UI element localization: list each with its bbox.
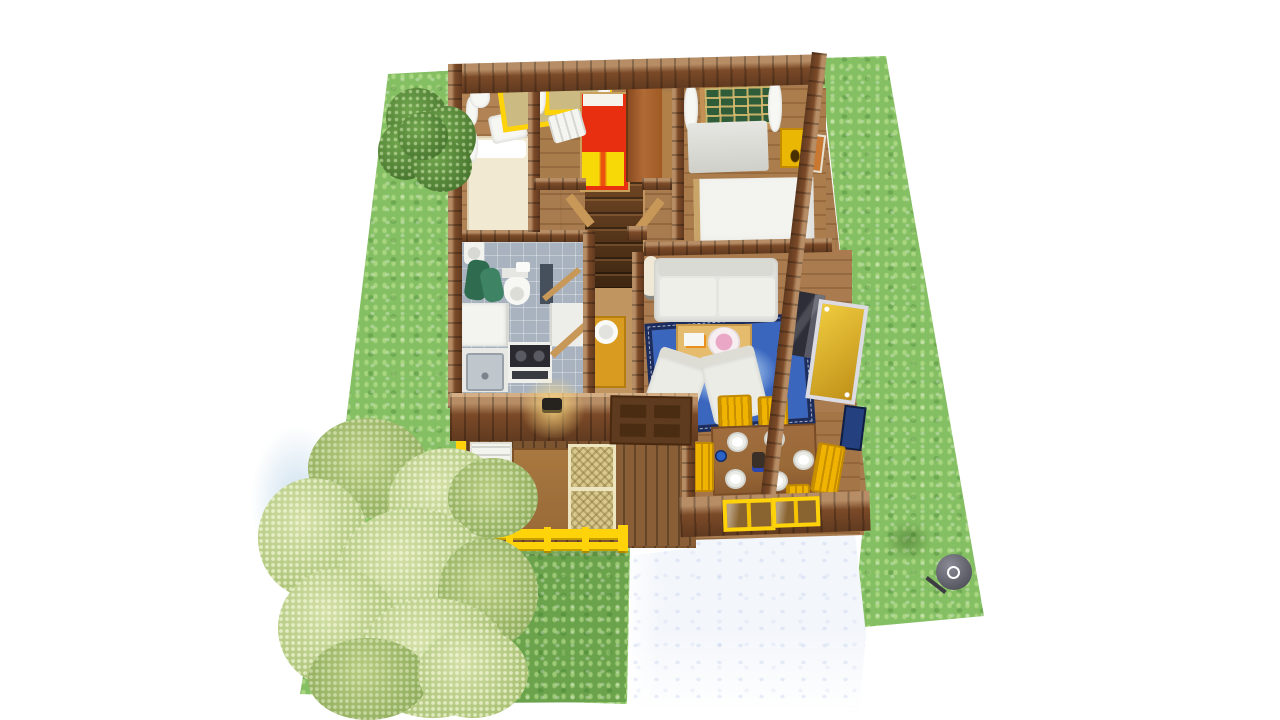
lawn-shadow-spot: [884, 520, 932, 560]
kids-bed-blanket: [582, 152, 624, 186]
porch-wall-lamp: [542, 398, 562, 413]
plate-5: [725, 469, 746, 489]
garden-house-scene: [0, 0, 1280, 720]
kids-bed-pillow: [583, 94, 623, 106]
coffee-table-books: [684, 333, 704, 346]
porch-rail-post-3: [544, 527, 551, 553]
blue-dish: [715, 450, 727, 462]
wall-kitchen-right: [583, 230, 595, 402]
sofa-back-cushions: [658, 260, 774, 276]
wall-bath-top-b: [627, 226, 647, 240]
wall-kids-south-b: [642, 178, 676, 190]
tree-large: [248, 418, 544, 720]
wall-bedrooms-divider: [528, 90, 540, 232]
porch-rail-post-5: [618, 525, 628, 553]
sofa-seat-cushion-right: [719, 278, 775, 316]
master-dresser: [687, 121, 769, 174]
kitchen-sink: [466, 353, 504, 391]
tree-large-blob: [418, 628, 528, 718]
wicker-chair-top: [568, 444, 616, 490]
wall-master-left: [672, 88, 684, 240]
tree-small: [378, 82, 482, 194]
fridge: [460, 303, 509, 346]
tree-small-blob: [398, 112, 448, 160]
plate-3: [793, 450, 814, 470]
dining-window-left: [722, 498, 775, 532]
wardrobe: [626, 88, 662, 182]
master-curtain-b: [768, 80, 782, 132]
dining-chair-top-left: [717, 394, 752, 429]
patio: [625, 518, 870, 718]
wall-hall-living: [632, 252, 644, 404]
front-door: [610, 395, 693, 445]
toilet-paper-holder: [516, 262, 530, 272]
stove-cooktop: [510, 345, 550, 367]
sofa-seat-cushion-left: [660, 278, 716, 316]
barbecue-grill-mark: [947, 566, 960, 579]
dining-window-right: [771, 496, 820, 528]
dining-bench-left: [692, 442, 714, 492]
porch-rail-post-4: [582, 527, 589, 553]
wall-kids-south-a: [534, 178, 586, 190]
wall-bath-top-a: [452, 230, 588, 242]
washstand-basin: [594, 320, 618, 344]
plate-1: [727, 432, 748, 452]
toilet: [504, 277, 530, 305]
tree-large-blob: [308, 638, 428, 720]
